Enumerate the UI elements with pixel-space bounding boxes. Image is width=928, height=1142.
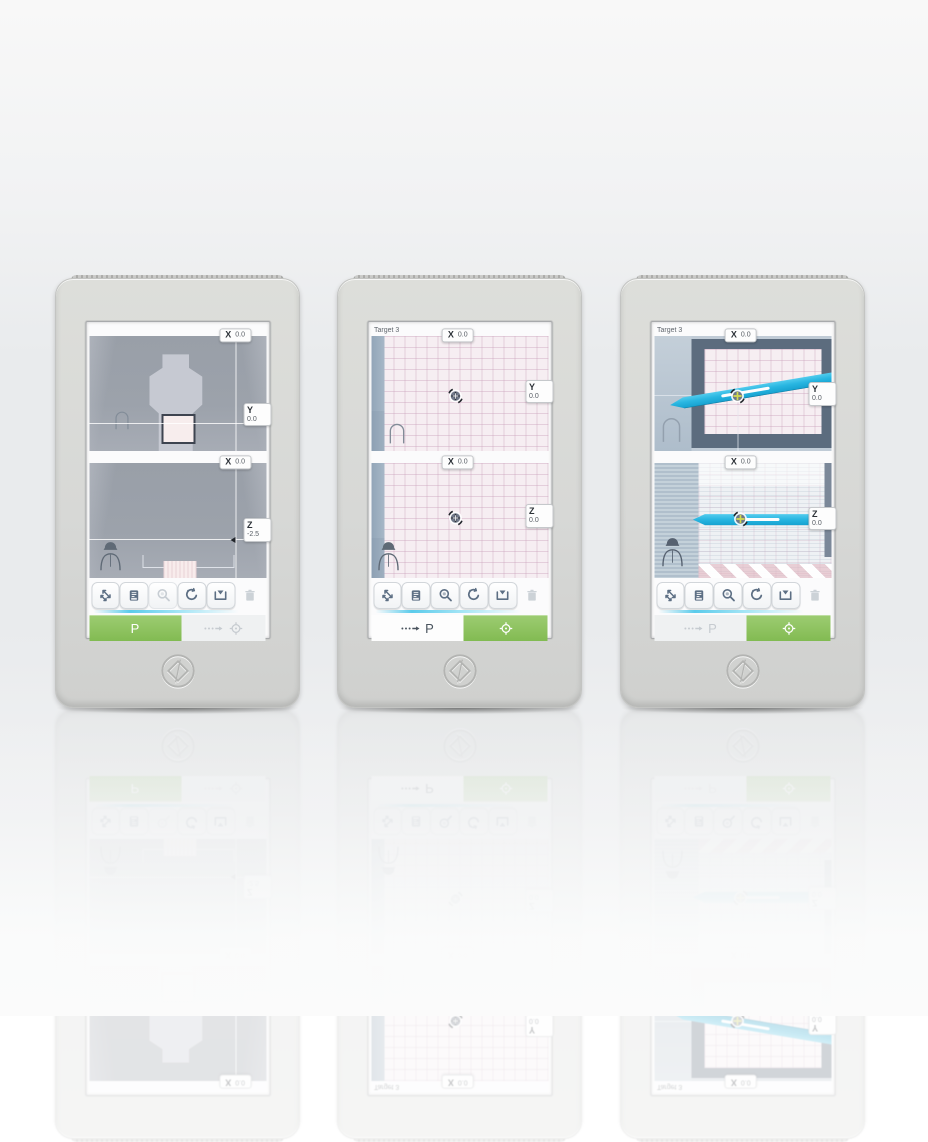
side-view-panel[interactable]: X 0.0 Z 0.0 — [371, 463, 548, 578]
toolbar — [654, 581, 831, 609]
report-button[interactable] — [402, 582, 431, 609]
front-view-panel[interactable]: X 0.0 Y 0.0 — [89, 336, 266, 451]
accent-glow-line — [658, 610, 823, 613]
device-3: Target 3 — [620, 278, 865, 708]
target-block — [163, 561, 197, 578]
power-button[interactable] — [723, 651, 763, 691]
probe-arch-icon — [114, 407, 131, 431]
front-view-panel[interactable]: X 0.0 Y 0.0 — [654, 336, 831, 451]
crosshair-vline — [737, 405, 738, 451]
trash-icon — [242, 588, 257, 603]
power-button[interactable] — [440, 651, 480, 691]
probe-arch-icon — [659, 413, 683, 443]
device-2: Target 3 X 0.0 Y — [337, 278, 582, 708]
accent-glow-line — [93, 610, 258, 613]
toolbar — [89, 581, 266, 609]
z-coordinate-badge: Z 0.0 — [808, 507, 836, 531]
crosshair-hline — [89, 539, 266, 540]
patient-icon — [375, 539, 401, 572]
target-marker[interactable] — [445, 385, 467, 407]
target-label: Target 3 — [654, 327, 682, 334]
target-label: Target 3 — [371, 327, 399, 334]
target-marker[interactable] — [445, 507, 467, 529]
depth-marker-icon — [231, 537, 236, 543]
magnifier-button[interactable] — [431, 582, 460, 609]
magnifier-icon — [720, 587, 736, 603]
dots-arrow-icon — [204, 624, 224, 633]
mode-buttons: P — [654, 615, 831, 641]
report-icon — [692, 588, 707, 603]
trash-icon — [524, 588, 539, 603]
side-view-panel[interactable]: X 0.0 Z -2.5 — [89, 463, 266, 578]
power-logo-icon — [441, 652, 479, 690]
device-body: Target 3 X 0.0 Y — [337, 278, 582, 708]
target-icon — [498, 621, 513, 636]
reset-icon — [466, 587, 482, 603]
front-view-panel[interactable]: X 0.0 Y 0.0 — [371, 336, 548, 451]
target-mode-button[interactable] — [463, 615, 548, 641]
delete-button — [800, 582, 829, 609]
magnifier-icon — [155, 587, 171, 603]
accent-glow-line — [375, 610, 540, 613]
reset-button[interactable] — [459, 582, 488, 609]
delete-button — [517, 582, 546, 609]
save-button[interactable] — [488, 582, 517, 609]
table-edge-bar — [371, 336, 384, 451]
hazard-stripes — [698, 564, 831, 578]
save-button[interactable] — [206, 582, 235, 609]
reset-icon — [184, 587, 200, 603]
report-icon — [127, 588, 142, 603]
reset-button[interactable] — [177, 582, 206, 609]
measure-button[interactable] — [91, 582, 120, 609]
crosshair-vline — [236, 463, 237, 578]
measure-button[interactable] — [373, 582, 402, 609]
report-button[interactable] — [120, 582, 149, 609]
save-button[interactable] — [771, 582, 800, 609]
measure-icon — [97, 587, 113, 603]
report-icon — [409, 588, 424, 603]
x-coordinate-badge: X 0.0 — [725, 328, 757, 342]
y-coordinate-badge: Y 0.0 — [525, 380, 553, 404]
reset-button[interactable] — [742, 582, 771, 609]
reset-icon — [749, 587, 765, 603]
go-to-probe-button[interactable]: P — [371, 615, 463, 641]
target-marker[interactable] — [730, 508, 752, 530]
go-to-probe-button: P — [654, 615, 746, 641]
crosshair-hline — [89, 423, 266, 424]
delete-button — [235, 582, 264, 609]
x-coordinate-badge: X 0.0 — [725, 455, 757, 469]
report-button[interactable] — [685, 582, 714, 609]
go-to-target-button — [181, 615, 266, 641]
target-marker[interactable] — [726, 385, 748, 407]
save-icon — [213, 587, 229, 603]
probe-arch-icon — [387, 419, 406, 445]
target-mode-button[interactable] — [746, 615, 831, 641]
mode-buttons: P — [371, 615, 548, 641]
dots-arrow-icon — [400, 624, 420, 633]
save-icon — [778, 587, 794, 603]
target-icon — [229, 621, 244, 636]
toolbar — [371, 581, 548, 609]
target-icon — [781, 621, 796, 636]
devices-row: X 0.0 Y 0.0 — [0, 709, 928, 1139]
z-coordinate-badge: Z 0.0 — [525, 504, 553, 528]
magnifier-icon — [437, 587, 453, 603]
device-body: X 0.0 Y 0.0 — [55, 278, 300, 708]
target-square[interactable] — [162, 414, 196, 444]
patient-icon — [659, 535, 685, 568]
power-logo-icon — [159, 652, 197, 690]
x-coordinate-badge: X 0.0 — [219, 455, 251, 469]
power-button[interactable] — [158, 651, 198, 691]
touchscreen: Target 3 — [650, 321, 835, 639]
measure-button[interactable] — [656, 582, 685, 609]
devices-row: X 0.0 Y 0.0 — [0, 278, 928, 708]
magnifier-button[interactable] — [714, 582, 743, 609]
x-coordinate-badge: X 0.0 — [442, 328, 474, 342]
dots-arrow-icon — [683, 624, 703, 633]
touchscreen: X 0.0 Y 0.0 — [85, 321, 270, 639]
device-body: Target 3 — [620, 278, 865, 708]
measure-icon — [379, 587, 395, 603]
save-icon — [495, 587, 511, 603]
product-stage: X 0.0 Y 0.0 — [0, 0, 928, 1016]
y-coordinate-badge: Y 0.0 — [243, 403, 271, 427]
device-1: X 0.0 Y 0.0 — [55, 278, 300, 708]
patient-icon — [98, 539, 124, 572]
y-coordinate-badge: Y 0.0 — [808, 382, 836, 406]
magnifier-button — [149, 582, 178, 609]
side-view-panel[interactable]: X 0.0 Z 0.0 — [654, 463, 831, 578]
touchscreen: Target 3 X 0.0 Y — [367, 321, 552, 639]
crosshair-vline — [236, 336, 237, 451]
trash-icon — [807, 588, 822, 603]
probe-mode-button[interactable]: P — [89, 615, 181, 641]
z-coordinate-badge: Z -2.5 — [243, 518, 271, 542]
x-coordinate-badge: X 0.0 — [442, 455, 474, 469]
room-wall — [654, 336, 691, 451]
power-logo-icon — [724, 652, 762, 690]
mode-buttons: P — [89, 615, 266, 641]
x-coordinate-badge: X 0.0 — [219, 328, 251, 342]
measure-icon — [662, 587, 678, 603]
devices-reflection: X 0.0 Y 0.0 — [0, 709, 928, 1139]
